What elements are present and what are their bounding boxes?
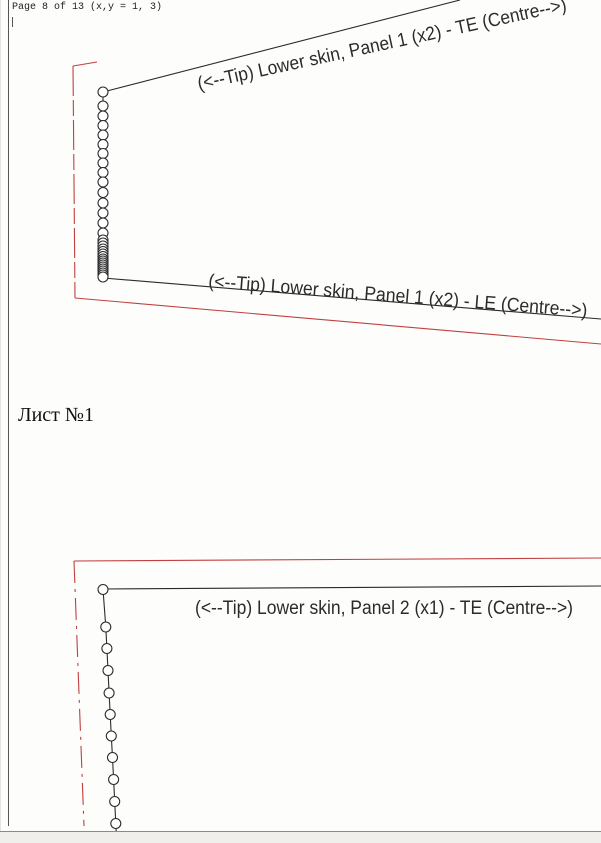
- window-bottom-edge: [0, 831, 601, 843]
- panel-edge-line: [103, 586, 601, 589]
- page-header-text: Page 8 of 13 (x,y = 1, 3): [12, 2, 162, 13]
- hole-marker: [98, 272, 108, 282]
- hole-marker: [98, 101, 108, 111]
- hole-marker: [105, 710, 115, 720]
- hole-marker: [104, 688, 114, 698]
- hole-marker: [98, 208, 108, 218]
- trim-line-red: [74, 558, 601, 561]
- trim-line-red: [74, 561, 84, 826]
- hole-marker: [98, 121, 108, 131]
- hole-marker: [108, 753, 118, 763]
- hole-marker: [98, 168, 108, 178]
- hole-marker: [98, 111, 108, 121]
- hole-marker: [111, 819, 121, 829]
- hole-marker: [98, 87, 108, 97]
- hole-marker: [98, 585, 108, 595]
- app-window: Page 8 of 13 (x,y = 1, 3) (<--Tip) Lower…: [0, 0, 601, 843]
- hole-marker: [98, 198, 108, 208]
- hole-marker: [110, 797, 120, 807]
- trim-line-red: [73, 66, 75, 298]
- hole-marker: [98, 188, 108, 198]
- hole-marker: [103, 666, 113, 676]
- hole-marker: [109, 775, 119, 785]
- hole-marker: [98, 130, 108, 140]
- hole-marker: [98, 218, 108, 228]
- panel-label: (<--Tip) Lower skin, Panel 1 (x2) - TE (…: [196, 0, 569, 95]
- trim-line-red: [73, 62, 97, 66]
- hole-marker: [106, 731, 116, 741]
- hole-marker: [98, 177, 108, 187]
- hole-marker: [102, 644, 112, 654]
- hole-marker: [98, 149, 108, 159]
- hole-marker: [101, 622, 111, 632]
- sheet-label: Лист №1: [18, 404, 94, 427]
- hole-marker: [98, 158, 108, 168]
- panel-label: (<--Tip) Lower skin, Panel 2 (x1) - TE (…: [195, 598, 573, 619]
- window-left-edge: [0, 0, 1, 843]
